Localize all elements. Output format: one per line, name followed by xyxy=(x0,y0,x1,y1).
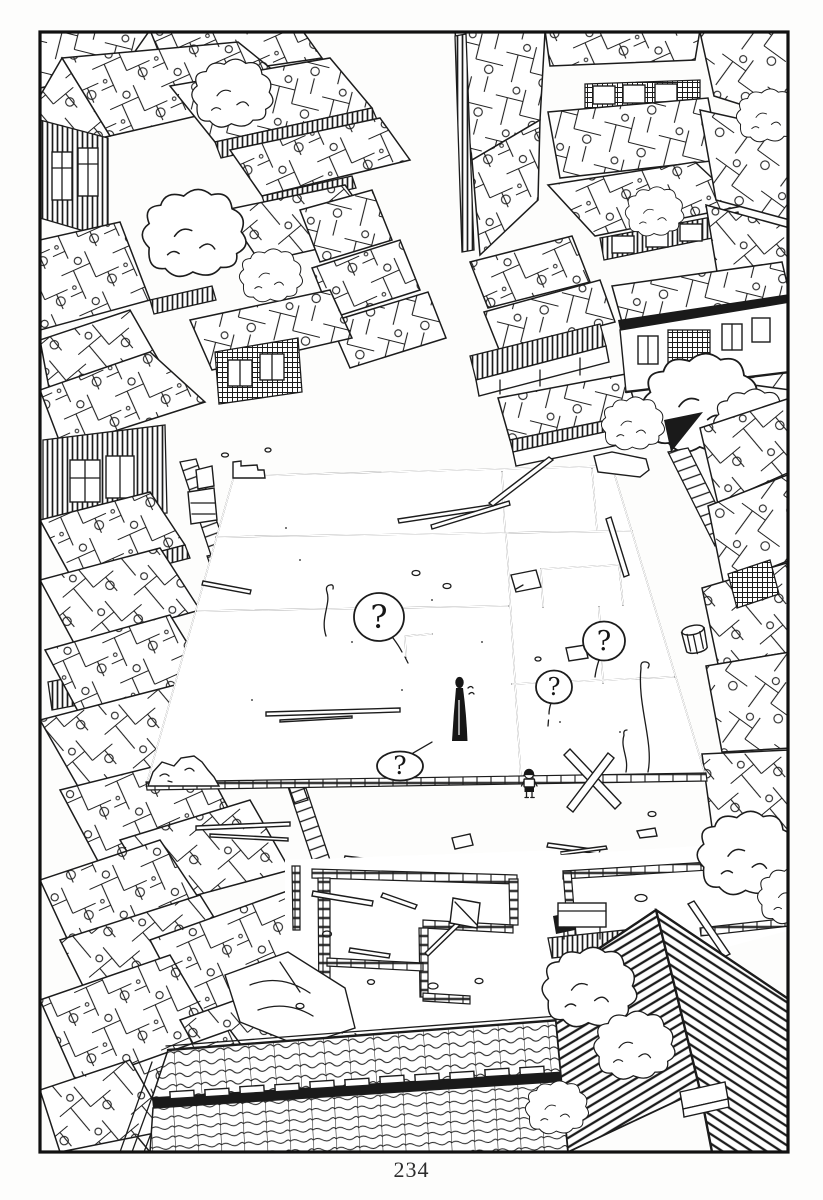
question-mark-text: ? xyxy=(370,598,387,636)
question-mark-text: ? xyxy=(597,626,611,657)
tree xyxy=(142,189,246,276)
drum xyxy=(681,623,709,656)
page-number: 234 xyxy=(0,1157,823,1183)
manga-panel-illustration: ? ? ? ? xyxy=(0,0,823,1200)
tree xyxy=(239,249,302,302)
question-mark-text: ? xyxy=(548,673,561,701)
rooftops-top-right xyxy=(455,30,800,466)
question-mark-text: ? xyxy=(393,751,406,780)
manga-page: ? ? ? ? 234 xyxy=(0,0,823,1200)
rooftops-top-left xyxy=(40,30,446,420)
